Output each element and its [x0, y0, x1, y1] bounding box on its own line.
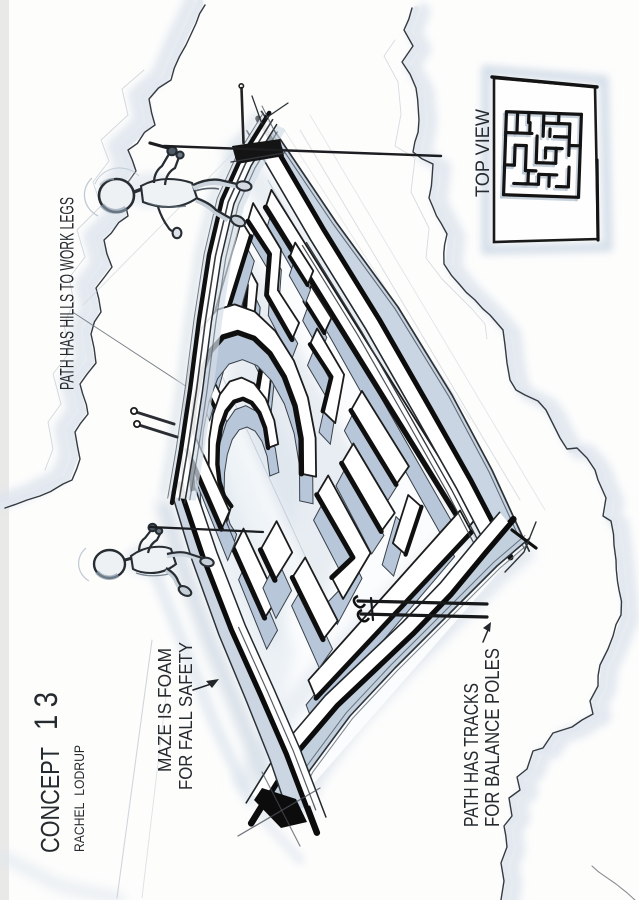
svg-text:PATH HAS TRACKS: PATH HAS TRACKS	[460, 683, 483, 827]
svg-text:TOP VIEW: TOP VIEW	[472, 108, 494, 197]
svg-text:MAZE IS FOAM: MAZE IS FOAM	[154, 648, 175, 772]
svg-text:PATH HAS HILLS TO WORK LEGS: PATH HAS HILLS TO WORK LEGS	[58, 197, 79, 390]
svg-text:RACHEL LODRUP: RACHEL LODRUP	[72, 745, 87, 852]
svg-text:1 3: 1 3	[28, 692, 64, 730]
svg-text:CONCEPT: CONCEPT	[35, 747, 65, 853]
svg-text:FOR BALANCE POLES: FOR BALANCE POLES	[481, 648, 504, 827]
svg-text:FOR FALL SAFETY: FOR FALL SAFETY	[175, 642, 196, 790]
